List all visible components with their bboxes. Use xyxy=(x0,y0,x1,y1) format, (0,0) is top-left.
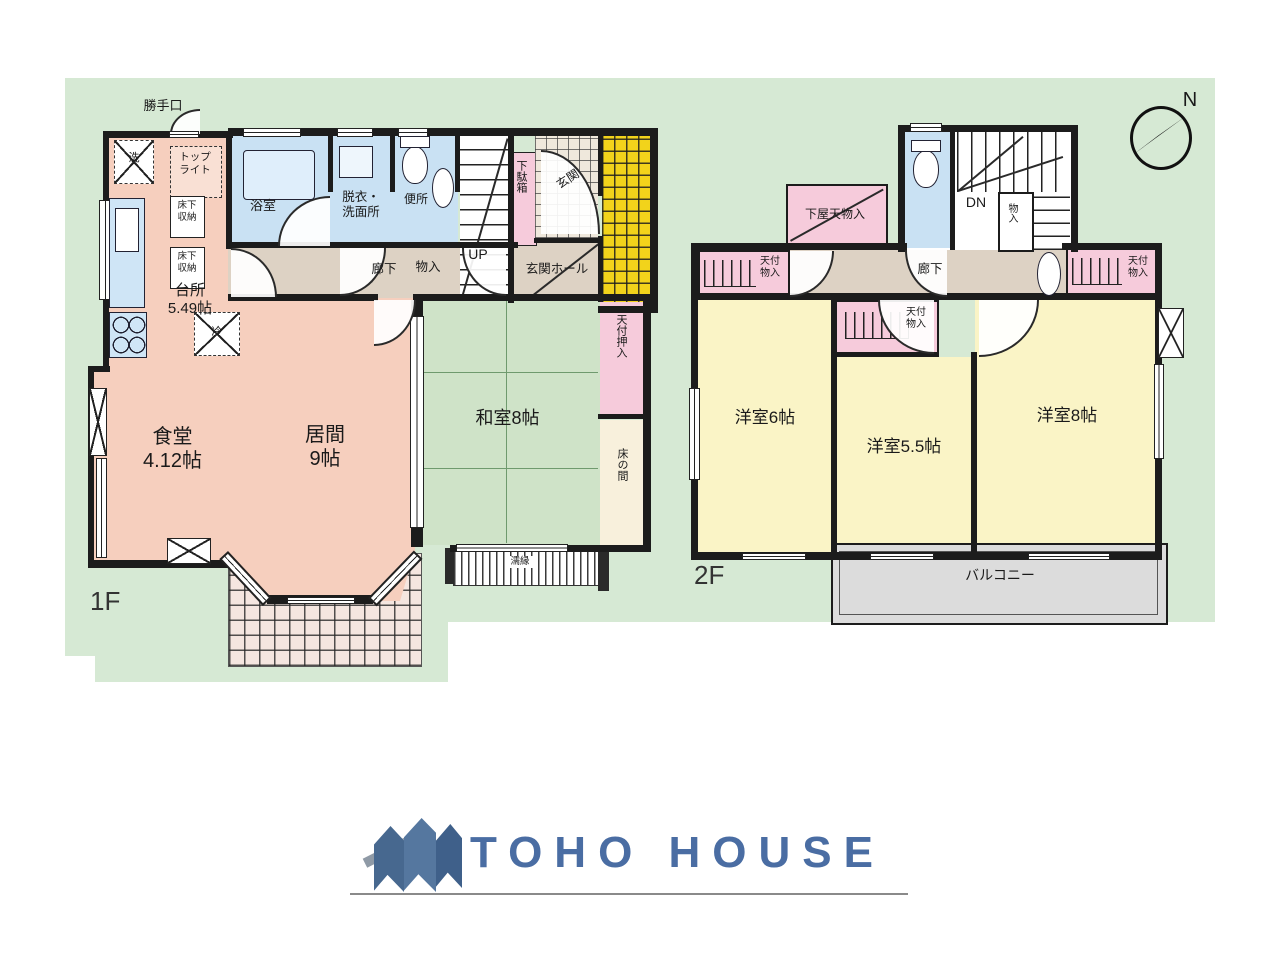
hanger-rod xyxy=(1072,258,1122,285)
storage-label-1f: 物入 xyxy=(406,260,450,275)
wall xyxy=(1062,243,1162,250)
nureen-post-left xyxy=(445,548,454,584)
porch-tiles xyxy=(602,132,651,308)
washbasin xyxy=(339,146,373,178)
wall xyxy=(103,131,169,138)
dn-label: DN xyxy=(956,194,996,211)
corridor-label-2f: 廊下 xyxy=(908,262,952,277)
wall xyxy=(898,125,905,252)
hanger-rod xyxy=(704,260,756,287)
toilet-bowl-1f xyxy=(402,146,428,184)
wall xyxy=(598,414,646,419)
wall xyxy=(643,300,651,552)
bedroom55-bottom-window xyxy=(870,553,934,560)
living-label: 居間 9帖 xyxy=(275,423,375,472)
wall xyxy=(226,131,232,249)
tokonoma-alcove xyxy=(600,420,646,545)
wall xyxy=(831,298,837,558)
bedroom8-right-window xyxy=(1154,364,1164,459)
wall xyxy=(88,560,233,568)
toilet-bowl-2f xyxy=(913,150,939,188)
wall xyxy=(971,352,977,558)
washroom-label: 脱衣・ 洗面所 xyxy=(330,190,392,221)
corner-basin-2f xyxy=(1037,252,1061,296)
getabako-label: 下駄箱 xyxy=(515,160,526,193)
wc-label: 便所 xyxy=(394,192,438,207)
wall xyxy=(455,134,460,192)
wall xyxy=(413,294,651,301)
wall xyxy=(534,238,600,243)
dining-label: 食堂 4.12帖 xyxy=(120,425,225,474)
compass xyxy=(1130,106,1192,170)
nureen-sliding-door xyxy=(456,544,568,552)
toilet-tank-1f xyxy=(400,136,430,148)
stairs-storage-label: 物入 xyxy=(1006,203,1016,223)
bedroom55-label: 洋室5.5帖 xyxy=(848,437,960,458)
backdoor-label: 勝手口 xyxy=(128,98,198,114)
hall-label: 玄関ホール xyxy=(512,262,602,277)
tatami-line-h1 xyxy=(417,372,598,373)
logo-underline xyxy=(350,893,908,895)
shutter-box xyxy=(167,538,211,564)
bedroom8-label: 洋室8帖 xyxy=(1017,406,1117,427)
wall xyxy=(390,134,395,192)
logo-brand-text: TOHO HOUSE xyxy=(470,826,910,880)
tokonoma-label: 床の間 xyxy=(616,448,627,481)
bath-label: 浴室 xyxy=(238,198,288,214)
wall xyxy=(950,128,955,250)
floor2-label: 2F xyxy=(694,560,744,592)
shimoya-label: 下屋天物入 xyxy=(789,207,881,222)
wall xyxy=(598,134,603,196)
balcony-label: バルコニー xyxy=(940,567,1060,584)
tatami-line-h2 xyxy=(417,468,598,469)
wall xyxy=(1071,125,1078,252)
wall xyxy=(691,293,1162,300)
kitchen-label: 台所 5.49帖 xyxy=(145,282,235,319)
wall xyxy=(650,128,658,313)
toilet-tank-2f xyxy=(911,140,941,152)
up-label: UP xyxy=(458,246,498,263)
floor1-label: 1F xyxy=(90,586,140,618)
shutter-box xyxy=(89,388,107,456)
kitchen-stove xyxy=(109,312,147,358)
logo-house-icon xyxy=(362,818,462,902)
compass-n-label: N xyxy=(1178,88,1202,112)
bay-window-bottom xyxy=(287,597,355,604)
toplight-label: トップ ライト xyxy=(168,151,222,177)
wall xyxy=(328,134,333,192)
wall xyxy=(411,528,423,547)
backdoor-gap xyxy=(169,131,199,138)
washer-label: 洗 xyxy=(114,152,154,165)
washitsu-sliding-door xyxy=(410,316,424,528)
shutter-box-2f xyxy=(1158,308,1184,358)
washitsu-label: 和室8帖 xyxy=(455,408,560,430)
floor-storage-label-2: 床下 収納 xyxy=(169,251,205,274)
wall xyxy=(691,243,907,250)
fridge-label: 冷 xyxy=(197,326,237,339)
wall xyxy=(598,306,658,313)
oshiire-label: 天付押入 xyxy=(615,314,626,358)
bedroom6-label: 洋室6帖 xyxy=(715,408,815,429)
nureen-label: 濡縁 xyxy=(505,556,535,568)
closet-left-label: 天付 物入 xyxy=(754,256,786,280)
floor-storage-label-1: 床下 収納 xyxy=(169,200,205,223)
stairs-2f-treads-right xyxy=(1032,192,1070,250)
closet-right-label: 天付 物入 xyxy=(1122,256,1154,280)
floor-plan-page: 勝手口 洗 トップ ライト 床下 収納 床下 収納 台所 5.49帖 冷 食堂 … xyxy=(0,0,1280,960)
bedroom8-bottom-window xyxy=(1028,553,1110,560)
closet-mid-label: 天付 物入 xyxy=(900,307,932,331)
bath-window xyxy=(243,128,301,137)
bedroom6-bottom-window xyxy=(742,553,806,560)
bathtub xyxy=(243,150,315,200)
bedroom6-left-window xyxy=(689,388,700,480)
corridor-label-1f: 廊下 xyxy=(362,262,406,277)
stairs-2f-treads-top xyxy=(957,132,1069,192)
kitchen-sink xyxy=(115,208,139,252)
dining-window xyxy=(96,458,107,558)
washroom-window xyxy=(337,128,373,137)
toilet-window-2f xyxy=(910,123,942,132)
